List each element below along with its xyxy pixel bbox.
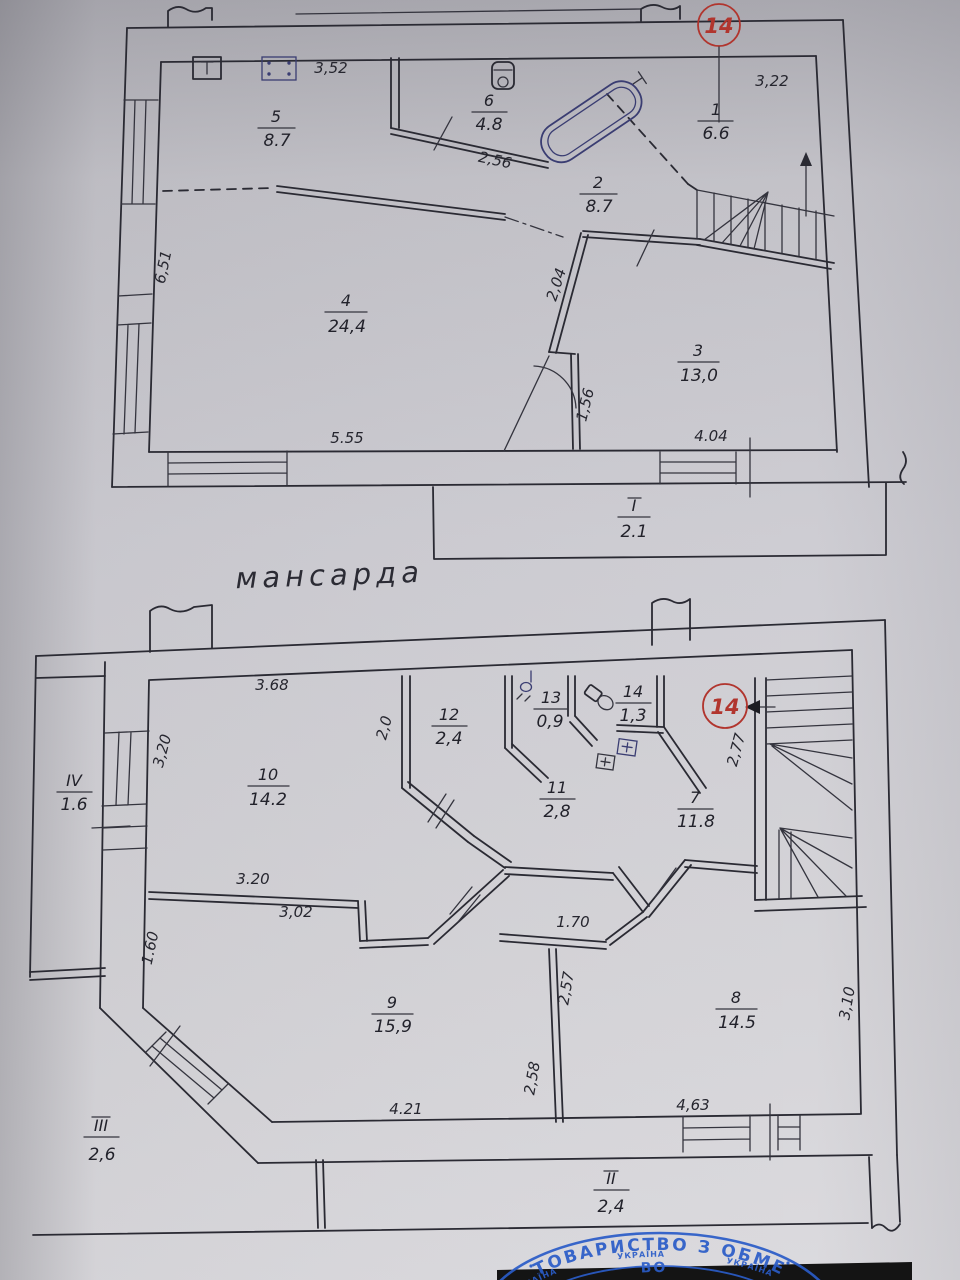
balcony-I-number: I [632,496,637,515]
dim-3-22: 3,22 [755,72,788,90]
dim-4-21: 4.21 [389,1100,422,1118]
room-2-area: 8.7 [585,197,612,217]
unit-number-upper: 14 [704,14,733,38]
stamp-inner-text-holder: ВО [640,1260,667,1276]
room-13-number: 13 [541,688,561,707]
room-1-number: 1 [711,100,721,119]
balcony-IV-area: 1.6 [60,795,87,815]
room-5-area: 8.7 [263,131,290,151]
room-7-number: 7 [690,788,701,807]
room-6-area: 4.8 [475,115,502,135]
room-3-area: 13,0 [680,366,718,386]
dim-3-52: 3,52 [314,59,347,77]
room-1-area: 6.6 [702,124,729,144]
room-13-area: 0,9 [536,712,563,732]
room-14-number: 14 [623,682,643,701]
balcony-III-area: 2,6 [88,1145,115,1165]
balcony-I-area: 2.1 [620,522,647,542]
dim-1-70: 1.70 [556,913,589,931]
room-9-area: 15,9 [374,1017,412,1037]
dim-3-02: 3,02 [279,903,312,921]
dim-4-63: 4,63 [676,1096,709,1114]
floor-plan-drawing: 14 5 8.7 6 4.8 1 6.6 2 8.7 4 24,4 [0,0,960,1280]
floor-caption: мансарда [235,555,425,596]
paper-shading [0,0,960,1280]
room-10-number: 10 [258,765,278,784]
balcony-II-area: 2,4 [597,1197,624,1217]
room-3-number: 3 [693,341,703,360]
unit-number-lower: 14 [710,695,739,719]
dim-3-20-mid: 3.20 [236,870,269,888]
room-6-number: 6 [484,91,494,110]
dim-5-55: 5.55 [330,429,363,447]
scanned-floor-plan-photo: 14 5 8.7 6 4.8 1 6.6 2 8.7 4 24,4 [0,0,960,1280]
dim-4-04: 4.04 [694,427,727,445]
room-4-area: 24,4 [328,317,366,337]
room-9-number: 9 [387,993,397,1012]
room-8-area: 14.5 [718,1013,756,1033]
dim-3-68: 3.68 [255,676,288,694]
stamp-inner-text: ВО [640,1260,667,1276]
balcony-IV-number: IV [66,771,83,790]
room-11-number: 11 [547,778,567,797]
balcony-II-number: II [606,1169,616,1188]
room-12-area: 2,4 [435,729,462,749]
room-5-number: 5 [271,107,281,126]
room-12-number: 12 [439,705,459,724]
room-14-area: 1,3 [619,706,646,726]
room-4-number: 4 [341,291,351,310]
room-11-area: 2,8 [543,802,570,822]
room-7-area: 11.8 [677,812,715,832]
room-2-number: 2 [593,173,603,192]
room-10-area: 14.2 [249,790,287,810]
room-8-number: 8 [731,988,741,1007]
balcony-III-number: III [94,1116,108,1135]
